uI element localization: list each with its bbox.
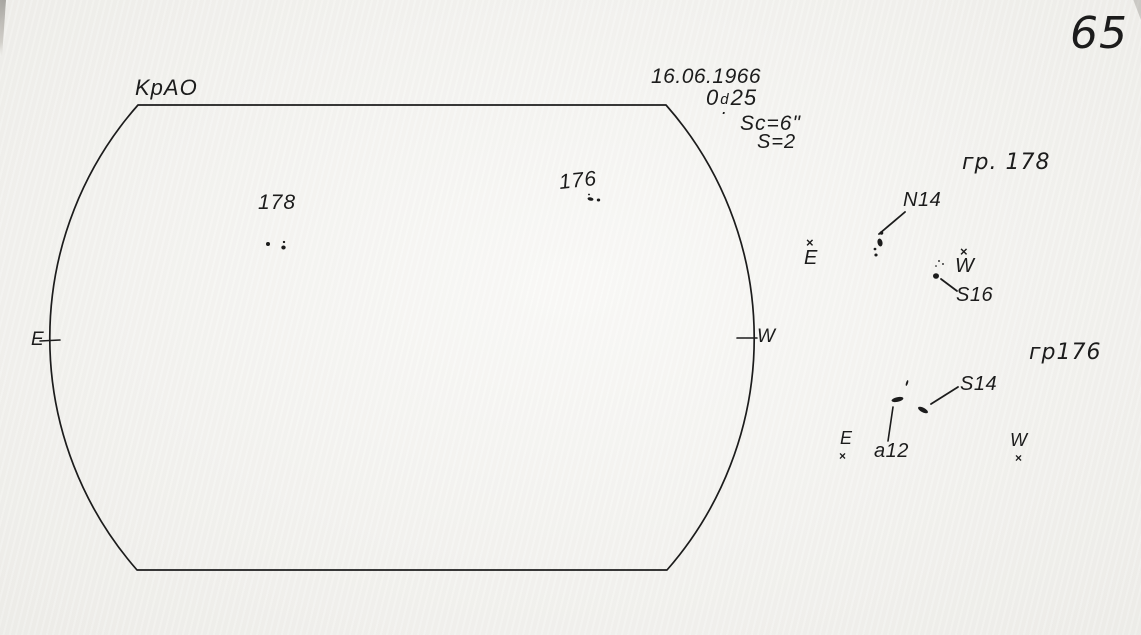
observation-time: 0d.25 [706, 87, 757, 113]
detail-178-east-label: E [804, 248, 818, 268]
detail-176-title: гр176 [1029, 342, 1102, 364]
observatory-label: KpAO [135, 77, 198, 99]
sunspot [880, 231, 884, 234]
disk-group-176-label: 176 [558, 168, 598, 193]
sunspot [588, 194, 590, 196]
sunspot [587, 197, 594, 202]
observation-sheet: 65 KpAO 16.06.1966 0d.25 Sc=6" S=2 178 1… [0, 0, 1141, 635]
observation-date: 16.06.1966 [651, 66, 761, 87]
detail-178-south-spot-label: S16 [956, 285, 993, 305]
solar-disk-outline [50, 105, 754, 570]
ink-line [879, 212, 905, 234]
sunspot [905, 380, 909, 386]
sunspot [917, 405, 929, 414]
ink-line [941, 279, 957, 291]
sunspot [877, 238, 884, 247]
detail-178-title: гр. 178 [962, 152, 1051, 174]
detail-178-north-spot-label: N14 [903, 190, 941, 210]
time-fraction: 25 [731, 85, 757, 110]
ink-line [931, 387, 958, 404]
detail-176-pore-label: a12 [874, 441, 909, 461]
disk-east-label: E [31, 330, 45, 349]
sunspot [281, 246, 285, 250]
sunspot [935, 265, 937, 267]
detail-176-south-spot-label: S14 [960, 374, 997, 394]
sunspot [891, 396, 904, 403]
sunspot [942, 263, 944, 265]
detail-176-west-label: W [1010, 431, 1028, 449]
disk-west-label: W [757, 327, 776, 346]
detail-178-west-label: W [955, 256, 975, 276]
page-number: 65 [1070, 12, 1128, 56]
sunspot [266, 242, 270, 246]
orientation-cross-icon: × [1015, 452, 1022, 464]
sunspot [283, 241, 285, 243]
time-superscript: d. [720, 96, 729, 113]
sunspot [938, 260, 940, 262]
orientation-cross-icon: × [839, 450, 846, 462]
disk-group-178-label: 178 [258, 192, 296, 213]
sunspot [874, 254, 877, 257]
sunspot [933, 273, 939, 279]
time-whole: 0 [706, 85, 719, 110]
seeing-note: S=2 [757, 132, 796, 152]
ink-line [888, 407, 893, 441]
sunspot [597, 199, 600, 202]
detail-176-east-label: E [840, 429, 853, 447]
sunspot [874, 248, 877, 251]
